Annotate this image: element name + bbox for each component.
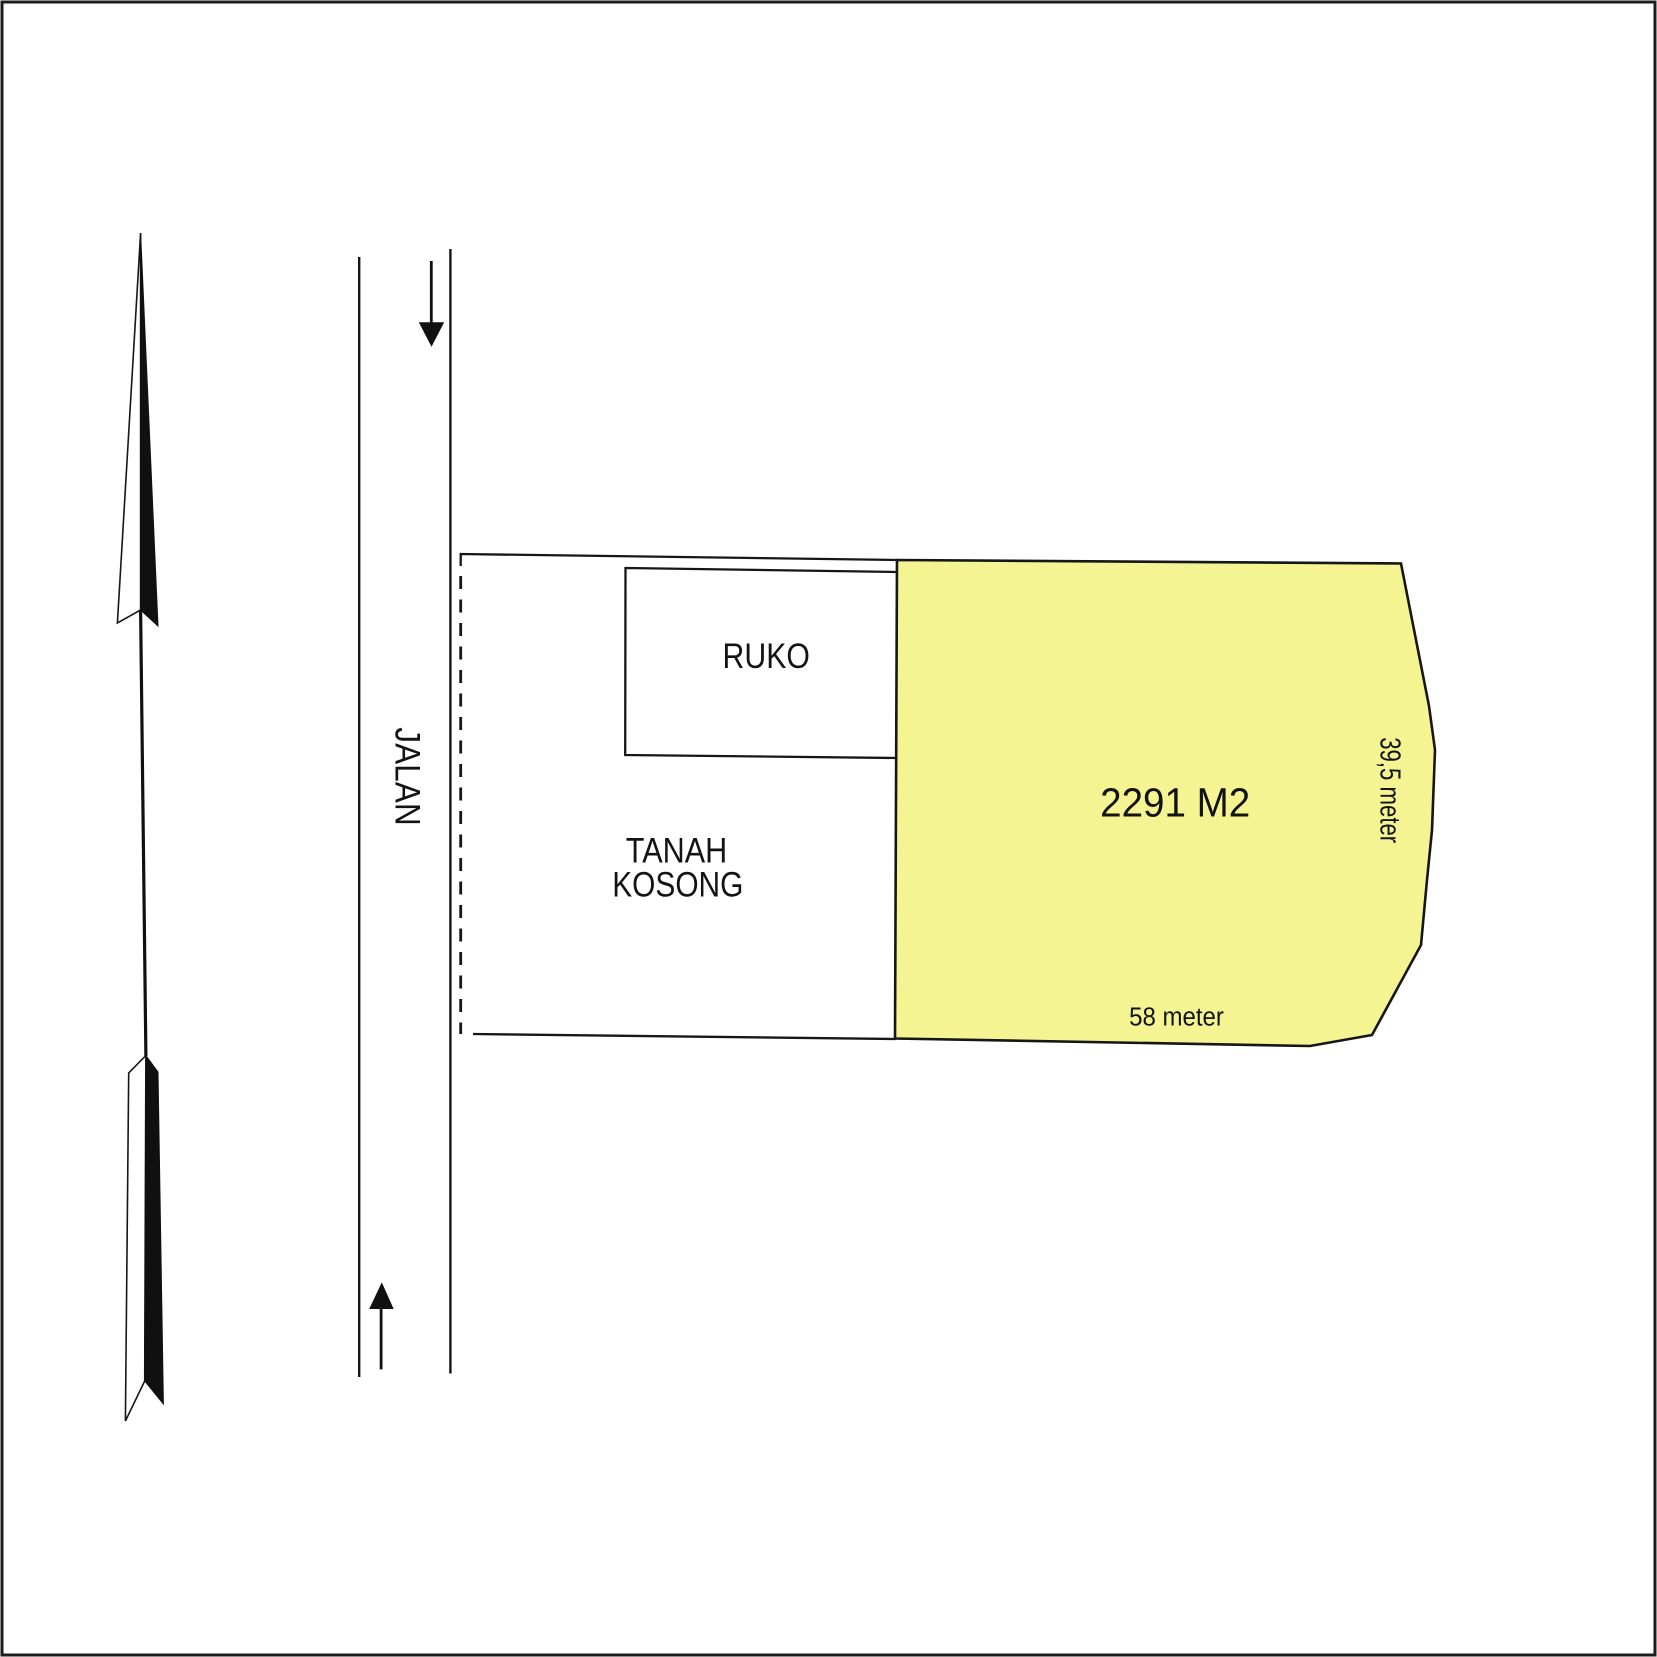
svg-text:RUKO: RUKO bbox=[723, 636, 810, 676]
svg-text:KOSONG: KOSONG bbox=[612, 865, 743, 904]
svg-text:2291 M2: 2291 M2 bbox=[1100, 780, 1250, 825]
svg-text:JALAN: JALAN bbox=[387, 727, 426, 826]
svg-text:58 meter: 58 meter bbox=[1129, 1003, 1224, 1032]
svg-text:TANAH: TANAH bbox=[626, 831, 727, 870]
svg-text:39,5 meter: 39,5 meter bbox=[1374, 737, 1405, 843]
